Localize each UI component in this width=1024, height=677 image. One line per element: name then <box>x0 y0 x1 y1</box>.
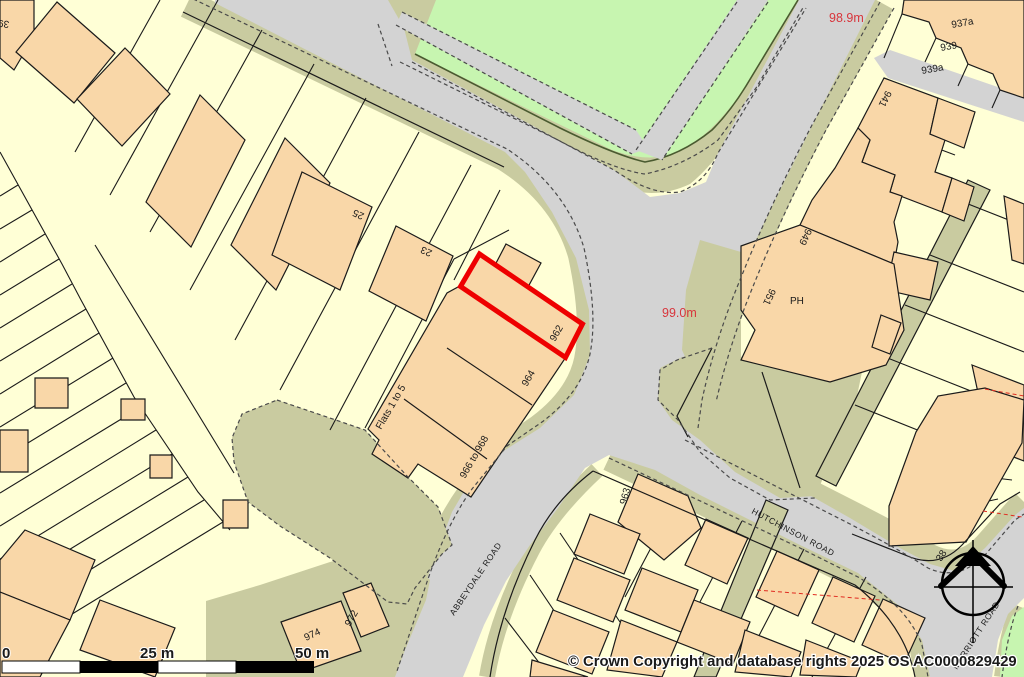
svg-text:98.9m: 98.9m <box>829 11 864 25</box>
svg-text:0: 0 <box>2 645 10 662</box>
svg-text:50 m: 50 m <box>295 645 329 662</box>
svg-text:25 m: 25 m <box>140 645 174 662</box>
svg-text:PH: PH <box>790 296 804 307</box>
svg-text:© Crown Copyright and database: © Crown Copyright and database rights 20… <box>568 654 1017 670</box>
svg-text:99.0m: 99.0m <box>662 306 697 320</box>
svg-text:39: 39 <box>0 17 10 29</box>
